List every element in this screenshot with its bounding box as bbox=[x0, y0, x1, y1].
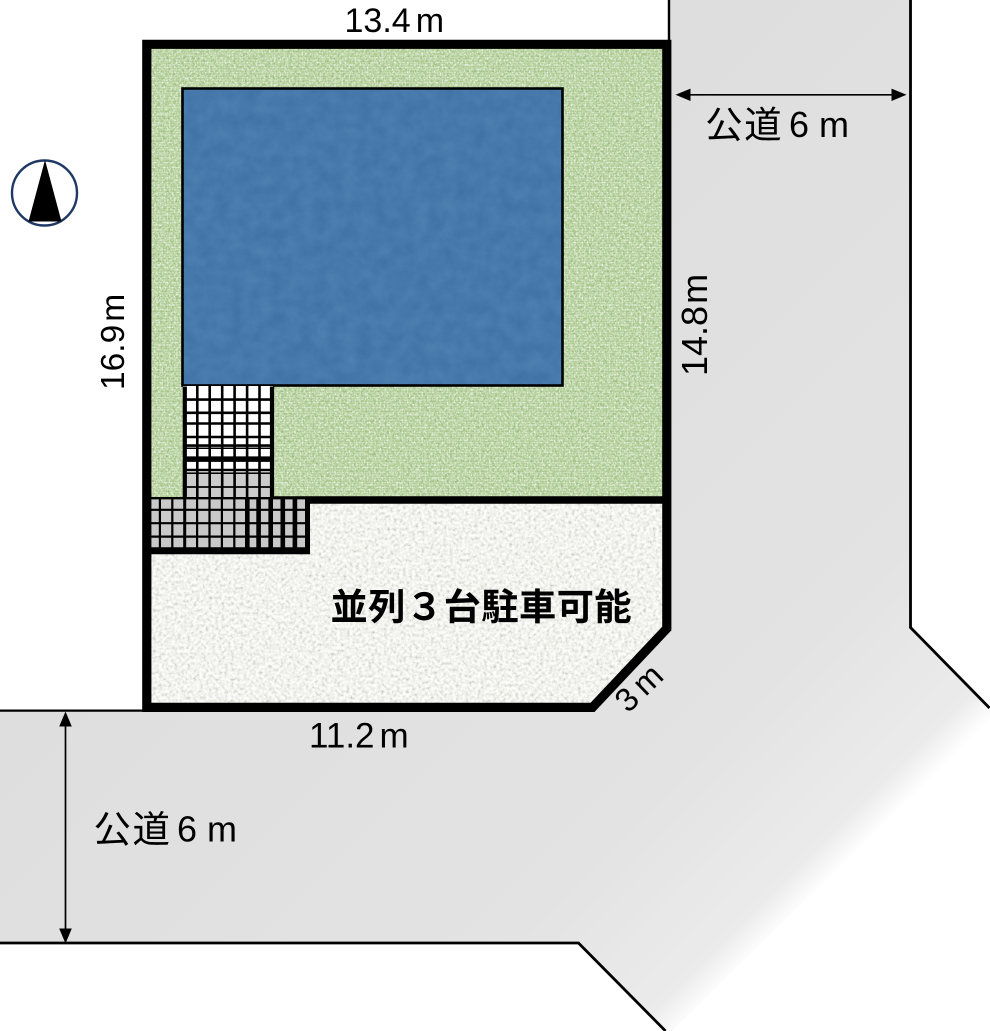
svg-text:16.9m: 16.9m bbox=[95, 294, 132, 390]
svg-text:13.4m: 13.4m bbox=[345, 2, 445, 40]
svg-text:6 m: 6 m bbox=[177, 809, 237, 850]
svg-text:14.8m: 14.8m bbox=[674, 274, 715, 376]
svg-text:11.2m: 11.2m bbox=[309, 717, 409, 756]
svg-text:6 m: 6 m bbox=[789, 104, 849, 145]
